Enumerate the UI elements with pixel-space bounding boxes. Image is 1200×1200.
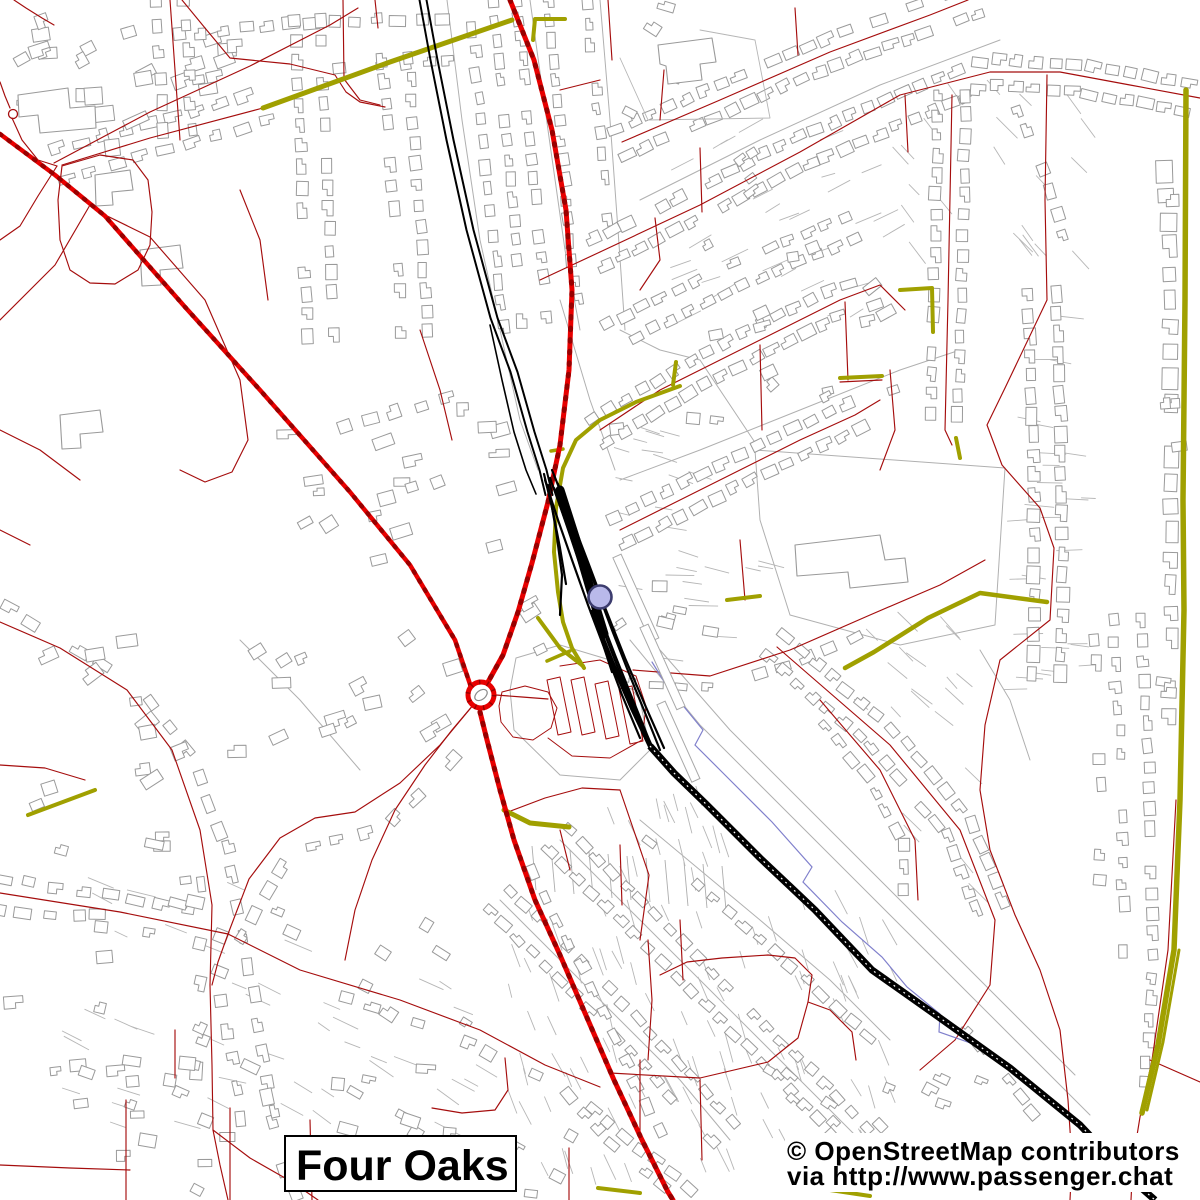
svg-text:via http://www.passenger.chat: via http://www.passenger.chat <box>787 1161 1173 1191</box>
svg-text:Four Oaks: Four Oaks <box>296 1142 509 1190</box>
